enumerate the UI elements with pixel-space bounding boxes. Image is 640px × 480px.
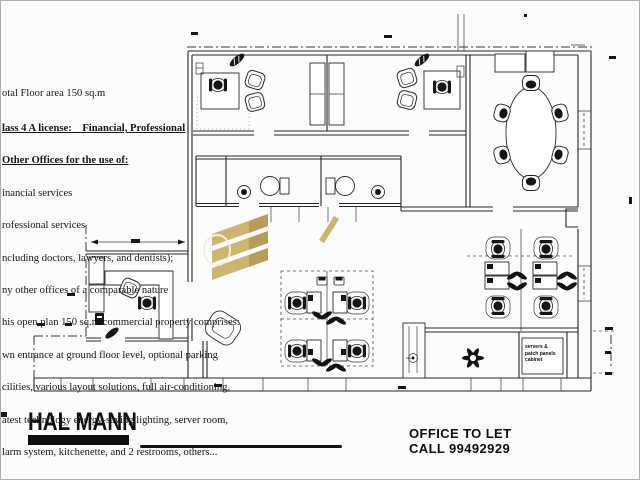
server-cabinet-label: servers & patch panels cabinet [525, 344, 562, 364]
plant-icon [506, 281, 528, 292]
logo-underline-bar [28, 435, 129, 445]
ac-unit-icon [228, 51, 246, 68]
ac-unit-icon [413, 51, 431, 68]
sink-icon [372, 186, 385, 199]
note-line: ncluding doctors, lawyers, and dentists)… [2, 254, 240, 265]
server-cabinet-label-line: cabinet [525, 357, 562, 364]
note-line: ny other offices of a comparable nature [2, 286, 240, 297]
scanned-page: otal Floor area 150 sq.m lass 4 A licens… [0, 0, 640, 480]
toilet-icon [261, 177, 290, 196]
office-b [396, 51, 464, 110]
note-line: lass 4 A license: Financial, Professiona… [2, 124, 240, 135]
plant-icon [556, 270, 578, 281]
entrance-door [403, 323, 425, 378]
conference-table [506, 87, 556, 179]
phone-number: CALL 99492929 [409, 441, 511, 456]
logo-text: HAL MANN [28, 410, 143, 434]
office-to-let-text: OFFICE TO LET [409, 426, 511, 441]
printer-icon [317, 277, 327, 285]
halmann-logo: HAL MANN [28, 410, 168, 445]
note-line: otal Floor area 150 sq.m [2, 89, 240, 100]
toilet-icon [326, 177, 355, 196]
note-line: cilities, various layout solutions, full… [2, 383, 240, 394]
note-line: inancial services [2, 189, 240, 200]
plant-icon [556, 281, 578, 292]
note-line: Other Offices for the use of: [2, 156, 240, 167]
note-line: rofessional services [2, 221, 240, 232]
contact-block: OFFICE TO LET CALL 99492929 [409, 426, 511, 456]
plant-icon [462, 347, 484, 369]
note-line: his open plan 150 sq.m commercial proper… [2, 318, 240, 329]
divider-line [140, 445, 342, 448]
credenza [495, 51, 554, 72]
workstation-cluster-middle [281, 271, 373, 373]
note-line: larm system, kitchenette, and 2 restroom… [2, 448, 240, 459]
workstation-cluster-right [425, 229, 578, 332]
note-line: wn entrance at ground floor level, optio… [2, 351, 240, 362]
printer-icon [334, 277, 344, 285]
